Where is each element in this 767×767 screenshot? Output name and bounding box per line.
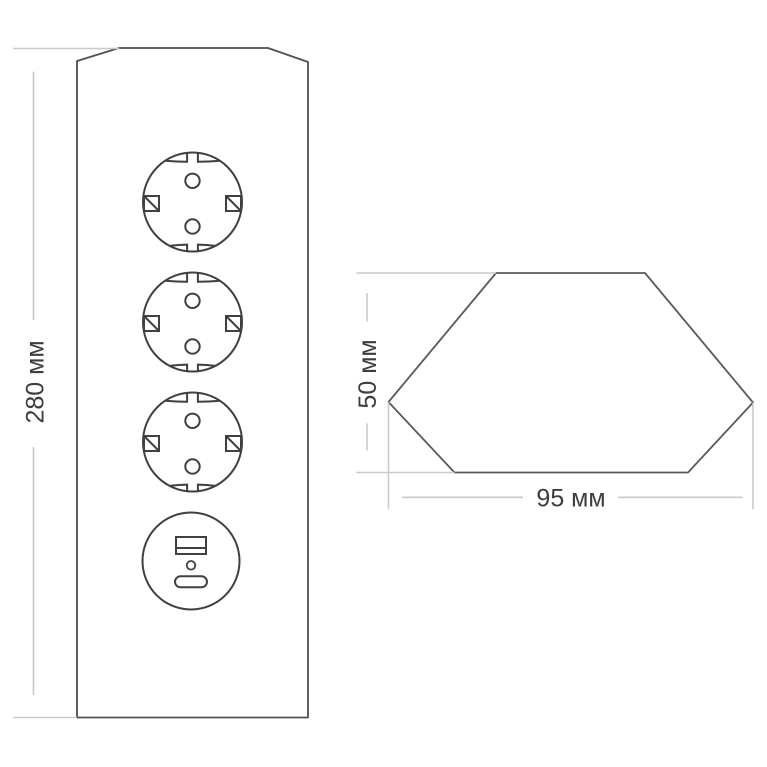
svg-text:95 мм: 95 мм — [536, 485, 605, 513]
svg-text:50 мм: 50 мм — [354, 339, 382, 408]
svg-text:280 мм: 280 мм — [22, 340, 50, 423]
